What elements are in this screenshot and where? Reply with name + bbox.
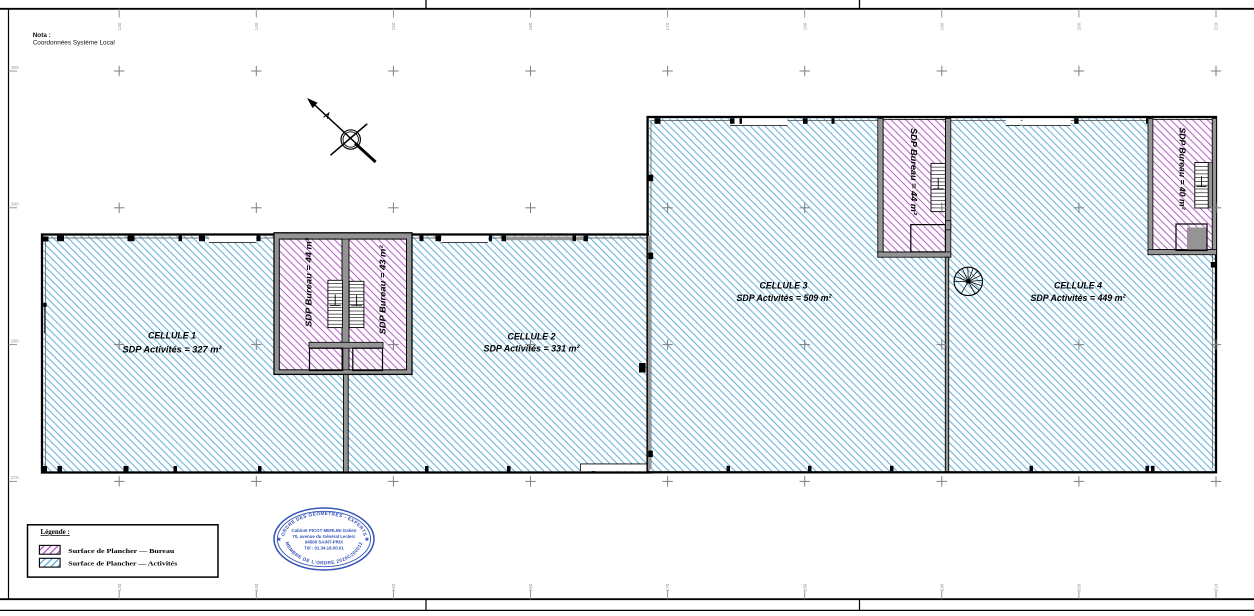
- svg-text:130: 130: [117, 22, 122, 30]
- svg-text:170: 170: [665, 22, 670, 30]
- svg-text:170: 170: [665, 583, 670, 591]
- svg-text:SDP Activités = 327 m²: SDP Activités = 327 m²: [123, 344, 223, 355]
- svg-text:SDP Activités = 449 m²: SDP Activités = 449 m²: [1031, 293, 1127, 304]
- svg-text:CELLULE 2: CELLULE 2: [508, 331, 557, 342]
- svg-text:SDP Bureau = 44 m²: SDP Bureau = 44 m²: [909, 128, 918, 215]
- svg-text:290: 290: [11, 202, 19, 207]
- svg-text:Surface de Plancher — Bureau: Surface de Plancher — Bureau: [68, 548, 175, 555]
- svg-text:160: 160: [528, 22, 533, 30]
- svg-text:Cabinet PICOT MERLINI Gatien: Cabinet PICOT MERLINI Gatien: [292, 528, 357, 533]
- svg-text:Coordonnées Système Local: Coordonnées Système Local: [33, 40, 115, 47]
- svg-text:200: 200: [1077, 583, 1082, 591]
- svg-text:160: 160: [528, 583, 533, 591]
- svg-text:140: 140: [254, 583, 259, 591]
- svg-text:150: 150: [391, 583, 396, 591]
- svg-text:140: 140: [254, 22, 259, 30]
- svg-text:150: 150: [391, 22, 396, 30]
- svg-text:190: 190: [939, 22, 944, 30]
- svg-text:200: 200: [1077, 22, 1082, 30]
- svg-text:Surface de Plancher — Activité: Surface de Plancher — Activités: [68, 561, 178, 568]
- svg-text:CELLULE 4: CELLULE 4: [1054, 281, 1103, 292]
- svg-text:SDP Bureau = 43 m²: SDP Bureau = 43 m²: [379, 245, 388, 334]
- svg-text:70, avenue du Général Leclerc: 70, avenue du Général Leclerc: [292, 534, 356, 539]
- svg-text:SDP Bureau = 44 m²: SDP Bureau = 44 m²: [305, 238, 314, 327]
- svg-text:Tél : 01.34.16.00.01: Tél : 01.34.16.00.01: [304, 546, 344, 551]
- svg-text:Nota :: Nota :: [33, 32, 51, 39]
- svg-text:180: 180: [802, 583, 807, 591]
- svg-text:Légende :: Légende :: [41, 528, 70, 536]
- svg-text:SDP Bureau = 40 m²: SDP Bureau = 40 m²: [1178, 128, 1187, 210]
- svg-text:CELLULE 1: CELLULE 1: [148, 331, 196, 342]
- svg-text:130: 130: [117, 583, 122, 591]
- svg-text:280: 280: [11, 338, 19, 343]
- svg-text:210: 210: [1214, 583, 1219, 591]
- svg-text:CELLULE 3: CELLULE 3: [760, 281, 809, 292]
- svg-text:190: 190: [939, 583, 944, 591]
- svg-text:SDP Activités = 509 m²: SDP Activités = 509 m²: [737, 293, 833, 304]
- svg-text:210: 210: [1214, 22, 1219, 30]
- svg-text:180: 180: [802, 22, 807, 30]
- svg-text:300: 300: [11, 65, 19, 70]
- svg-text:94500 SAINT-PRIX: 94500 SAINT-PRIX: [305, 540, 343, 545]
- svg-text:270: 270: [11, 475, 19, 480]
